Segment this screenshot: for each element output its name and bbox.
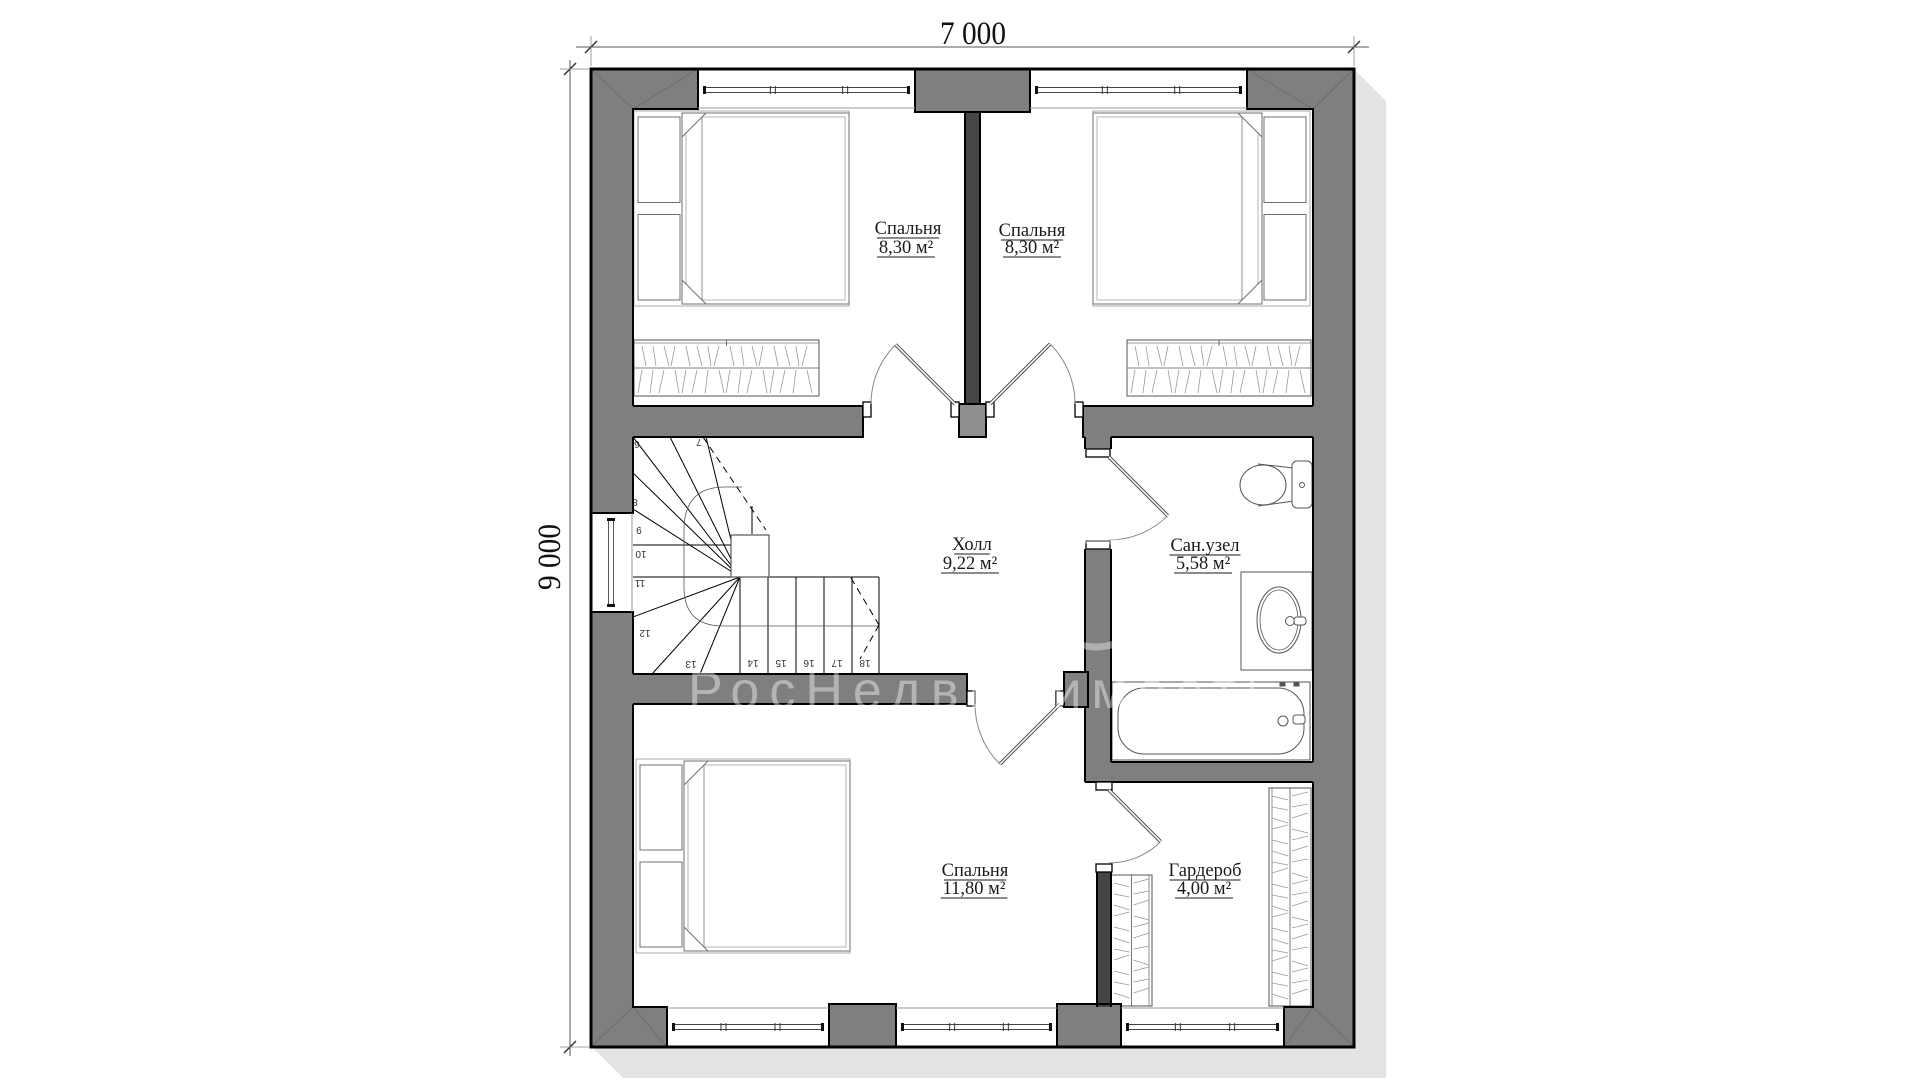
svg-text:4,00 м²: 4,00 м² — [1177, 879, 1232, 899]
svg-text:12: 12 — [639, 627, 651, 638]
svg-text:РосНедвижимость: РосНедвижимость — [688, 662, 1283, 720]
svg-text:Холл: Холл — [952, 535, 992, 555]
svg-text:Сан.узел: Сан.узел — [1170, 536, 1239, 556]
svg-text:11: 11 — [634, 577, 645, 588]
svg-text:9: 9 — [636, 524, 642, 535]
svg-text:8,30 м²: 8,30 м² — [879, 238, 934, 258]
svg-text:Спальня: Спальня — [875, 219, 942, 239]
svg-text:5,58 м²: 5,58 м² — [1176, 554, 1231, 574]
svg-text:Спальня: Спальня — [942, 861, 1009, 881]
svg-text:7 000: 7 000 — [940, 16, 1006, 52]
svg-text:6: 6 — [634, 438, 640, 449]
svg-text:11,80 м²: 11,80 м² — [943, 879, 1006, 899]
svg-text:8,30 м²: 8,30 м² — [1005, 238, 1060, 258]
svg-text:10: 10 — [635, 548, 647, 559]
svg-text:9,22 м²: 9,22 м² — [943, 554, 998, 574]
svg-text:Гардероб: Гардероб — [1169, 861, 1242, 881]
svg-text:9 000: 9 000 — [532, 524, 568, 590]
